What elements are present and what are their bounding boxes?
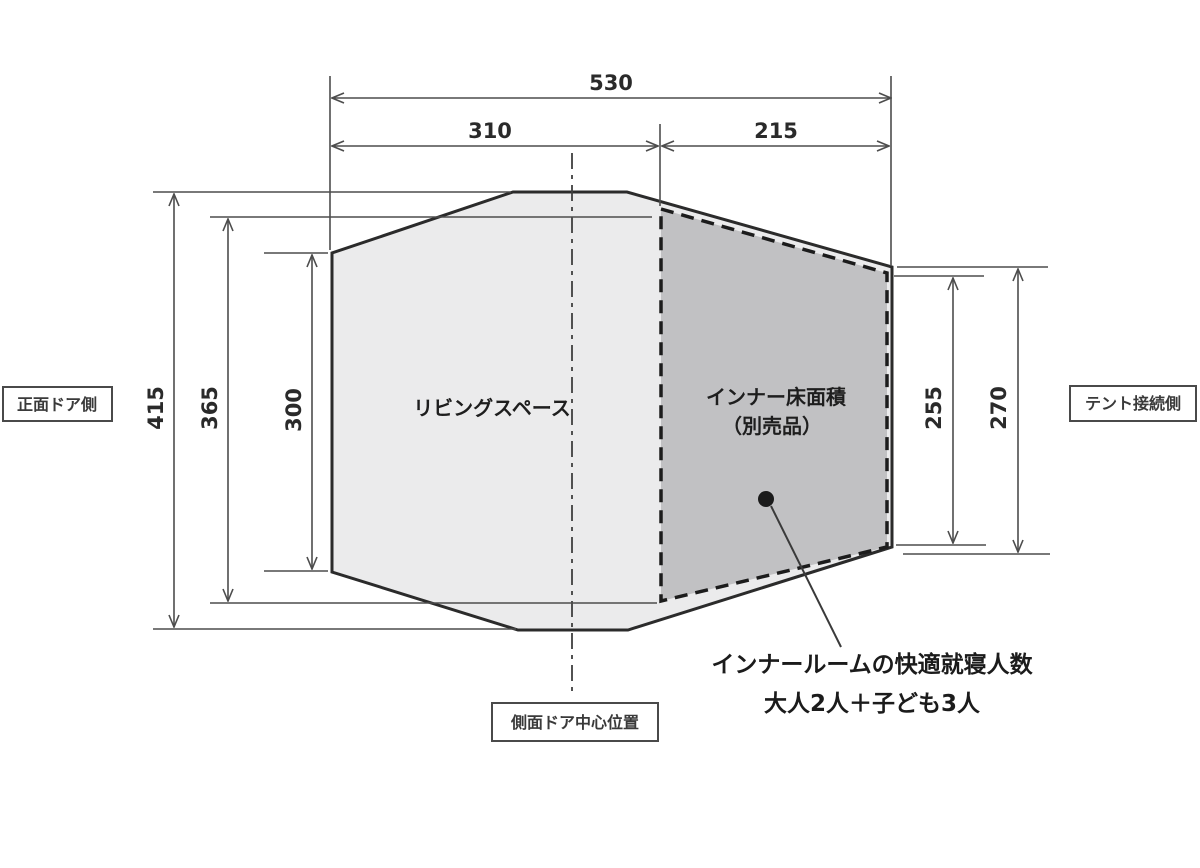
dim-310: 310 xyxy=(468,119,512,143)
diagram-canvas: 530 310 215 415 365 300 255 270 リビングスペース… xyxy=(0,0,1200,868)
dim-530: 530 xyxy=(589,71,633,95)
inner-floor-label-line2: （別売品） xyxy=(722,414,822,438)
front-door-side-label: 正面ドア側 xyxy=(17,395,97,414)
leader-dot xyxy=(758,491,774,507)
annotation-line1: インナールームの快適就寝人数 xyxy=(711,651,1033,678)
dim-270: 270 xyxy=(987,386,1011,430)
dim-415: 415 xyxy=(144,386,168,430)
tent-connection-side-label: テント接続側 xyxy=(1085,394,1181,413)
side-door-center-label: 側面ドア中心位置 xyxy=(510,713,639,732)
dim-255: 255 xyxy=(922,386,946,430)
dim-300: 300 xyxy=(282,388,306,432)
dim-365: 365 xyxy=(198,386,222,430)
annotation-line2: 大人2人＋子ども3人 xyxy=(764,691,981,717)
living-space-label: リビングスペース xyxy=(413,396,571,420)
tent-dimension-diagram: 530 310 215 415 365 300 255 270 リビングスペース… xyxy=(0,0,1200,868)
dim-215: 215 xyxy=(754,119,798,143)
inner-floor-label-line1: インナー床面積 xyxy=(706,385,847,409)
